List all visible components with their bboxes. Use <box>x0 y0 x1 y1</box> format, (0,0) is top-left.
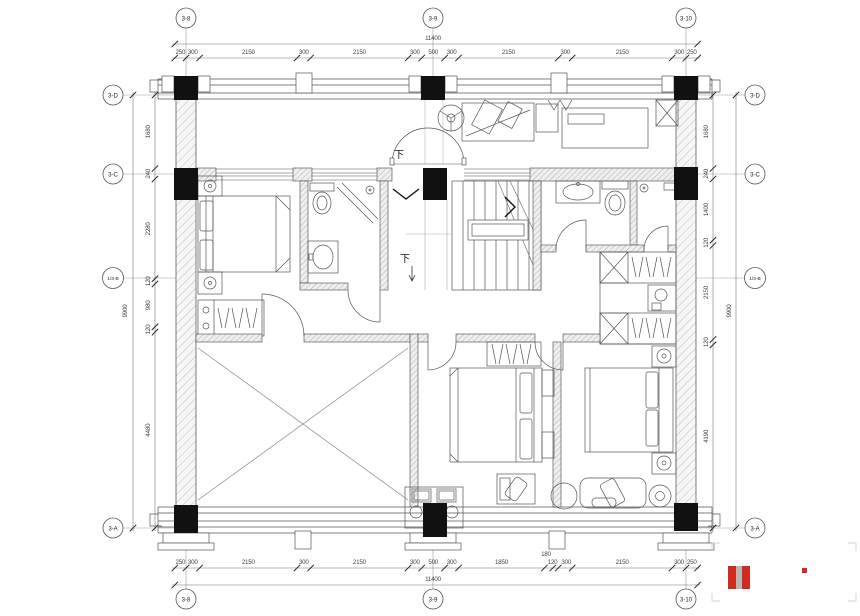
nightstand <box>542 432 554 458</box>
overall-height: 9900 <box>726 304 733 318</box>
dim-label: 2150 <box>353 559 367 566</box>
grid-bubble-label: 3-10 <box>680 17 693 23</box>
counter <box>648 285 676 311</box>
dim-label: 250 <box>687 49 697 56</box>
logo-dot <box>802 568 807 573</box>
bed <box>585 368 673 452</box>
wardrobe <box>198 300 264 336</box>
shower <box>337 183 378 223</box>
dim-label: 300 <box>560 49 570 56</box>
down-arrow <box>409 266 415 281</box>
grid-bubble-label: 3-10 <box>680 598 693 604</box>
dim-label: 1680 <box>703 125 710 139</box>
grid-bubble-label: 1/3-B <box>749 276 760 282</box>
dim-label: 300 <box>410 49 420 56</box>
dim-label: 300 <box>299 49 309 56</box>
grid-bubble-label: 3-C <box>108 173 118 179</box>
dim-label: 980 <box>145 300 152 310</box>
grid-bubble-label: 3-A <box>750 527 759 533</box>
fan-chair <box>438 105 464 131</box>
bed <box>450 368 542 462</box>
bedroom-3 <box>551 346 676 509</box>
bedroom-2 <box>450 342 554 504</box>
wardrobe-zone <box>600 252 676 344</box>
bathroom-2 <box>533 181 676 290</box>
dim-label: 300 <box>447 49 457 56</box>
toilet <box>602 181 628 215</box>
grid-bubble-label: 3-D <box>750 94 760 100</box>
dim-label: 250 <box>176 559 186 566</box>
title-block <box>712 543 856 601</box>
dim-label: 300 <box>188 559 198 566</box>
door <box>348 290 380 322</box>
desk <box>497 474 535 504</box>
floor-plan: 下 <box>0 0 860 616</box>
bed <box>198 196 290 272</box>
dim-label: 2150 <box>616 49 630 56</box>
dim-label: 300 <box>188 49 198 56</box>
dim-label: 2150 <box>353 49 367 56</box>
dim-label: 4190 <box>703 429 710 443</box>
dim-label: 300 <box>561 559 571 566</box>
dim-label: 240 <box>703 168 710 178</box>
washbasin <box>556 181 600 203</box>
wardrobe <box>600 313 676 344</box>
dim-label: 2150 <box>703 285 710 299</box>
wall <box>196 334 262 342</box>
round-chair <box>649 485 671 507</box>
nightstand <box>198 176 222 294</box>
dim-label: 250 <box>176 49 186 56</box>
right-wall <box>676 99 696 507</box>
shaft <box>656 100 678 126</box>
hall-walls <box>410 334 600 507</box>
door <box>428 342 456 370</box>
dim-label: 2150 <box>616 559 630 566</box>
dim-label: 250 <box>687 559 697 566</box>
dim-label: 2280 <box>145 222 152 236</box>
dim-label: 300 <box>674 559 684 566</box>
dim-label: 4480 <box>145 423 152 437</box>
stair-down-label-1: 下 <box>394 150 404 161</box>
grid-bubble-label: 3-D <box>108 94 118 100</box>
void-area <box>198 348 408 500</box>
wardrobe <box>600 252 676 283</box>
dim-label: 120 <box>548 559 558 566</box>
dim-label: 500 <box>428 49 438 56</box>
dim-label: 120 <box>145 276 152 286</box>
dim-label: 300 <box>299 559 309 566</box>
exterior-walls <box>150 73 720 550</box>
bedroom-1 <box>198 176 304 336</box>
columns <box>174 76 698 537</box>
dim-label: 1850 <box>495 559 509 566</box>
overall-width: 11400 <box>425 576 442 583</box>
dim-label: 1400 <box>703 202 710 216</box>
shower-compartment <box>640 183 676 250</box>
dim-label: 2150 <box>242 559 256 566</box>
dim-label: 2150 <box>242 49 256 56</box>
dim-label: 2150 <box>502 49 516 56</box>
stair-down-label-2: 下 <box>400 254 410 265</box>
grid-bubble-label: 3-C <box>750 173 760 179</box>
grid-bubble-label: 3-A <box>108 527 117 533</box>
curtain-marks <box>548 100 572 110</box>
logo <box>728 566 807 589</box>
direction-chevron-top <box>393 189 419 199</box>
overall-height: 9900 <box>122 304 129 318</box>
chaise <box>580 478 646 508</box>
dim-label: 240 <box>145 168 152 178</box>
grid-bubble-label: 1/3-B <box>107 276 118 282</box>
grid-bubble-label: 3-8 <box>182 598 191 604</box>
dim-label: 120 <box>703 237 710 247</box>
dim-label: 180 <box>541 551 551 558</box>
grid-bubble-label: 3-9 <box>429 598 438 604</box>
washbasin <box>308 241 338 273</box>
wall <box>304 334 410 342</box>
grid-bubble-label: 3-8 <box>182 17 191 23</box>
grid-bubble-label: 3-9 <box>429 17 438 23</box>
overall-width: 11400 <box>425 35 442 42</box>
dim-label: 120 <box>145 324 152 334</box>
daybed <box>462 100 534 141</box>
door <box>556 220 586 250</box>
door <box>262 294 304 336</box>
dim-label: 300 <box>674 49 684 56</box>
bathroom-1 <box>300 181 388 322</box>
toilet <box>310 183 334 214</box>
left-wall <box>176 99 196 507</box>
nightstand <box>542 370 554 396</box>
dim-label: 1680 <box>145 125 152 139</box>
wardrobe <box>487 342 541 366</box>
dim-label: 300 <box>447 559 457 566</box>
side-table <box>536 104 648 148</box>
dim-label: 500 <box>428 559 438 566</box>
dim-label: 120 <box>703 337 710 347</box>
window <box>216 169 530 180</box>
balcony <box>390 100 678 165</box>
dim-label: 300 <box>410 559 420 566</box>
